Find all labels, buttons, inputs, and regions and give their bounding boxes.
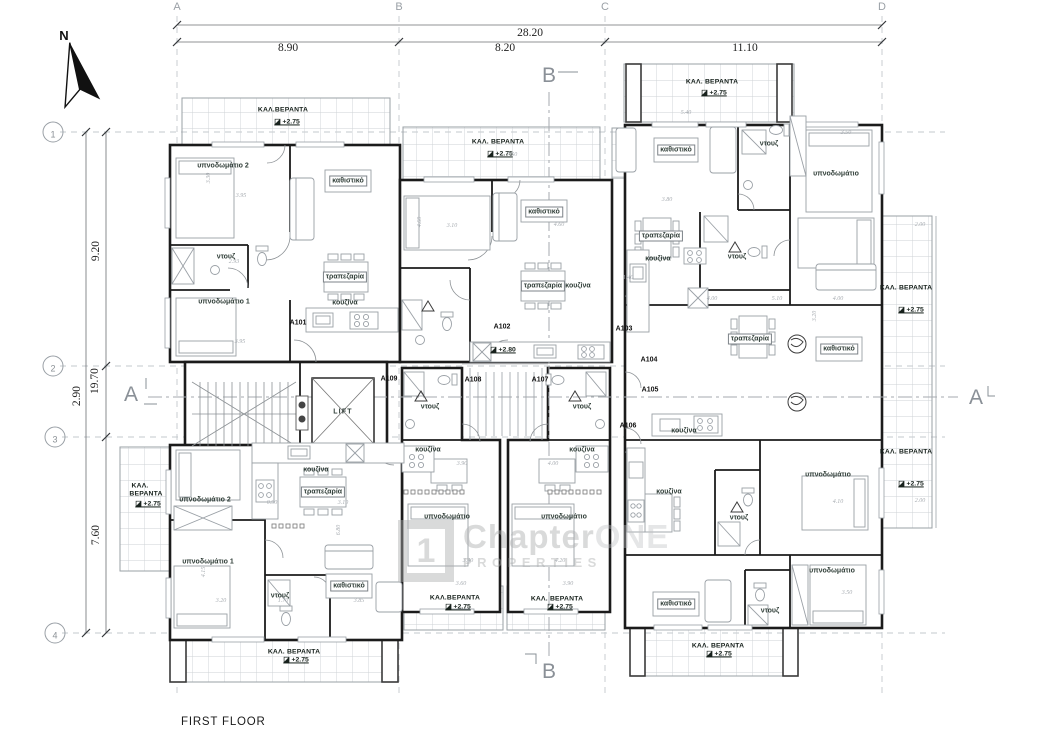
room-label: ντουζ [728, 253, 746, 260]
room-label: κουζίνα [415, 446, 440, 453]
sofa-icon [705, 580, 731, 622]
veranda-label: ΒΕΡΑΝΤΑ [129, 490, 162, 497]
wardrobe-icon [792, 565, 808, 625]
grid-row-label: 4 [52, 631, 57, 640]
minor-dimension-label: 4.60 [554, 222, 565, 228]
veranda-label: ΚΑΛ. ΒΕΡΑΝΤΑ [880, 284, 932, 291]
washbasin-icon [744, 181, 753, 190]
toilet-icon [256, 246, 268, 266]
floor-plan-drawing: 1 ChapterONE PROPERTIES ABCD123428.208.9… [0, 0, 1046, 734]
minor-dimension-label: 3.90 [563, 581, 574, 587]
level-marker: ◪ +2.75 [283, 656, 309, 663]
room-label: υπνοδωμάτιο [805, 471, 851, 478]
minor-dimension-label: 1.70 [278, 598, 289, 604]
minor-dimension-label: 5.10 [772, 296, 783, 302]
minor-dimension-label: 4.00 [833, 296, 844, 302]
minor-dimension-label: 4.00 [548, 461, 559, 467]
room-label: κουζίνα [645, 255, 670, 262]
dimension-label: 7.60 [90, 525, 102, 545]
minor-dimension-label: 3.20 [216, 598, 227, 604]
minor-dimension-label: 4.10 [833, 499, 844, 505]
minor-dimension-label: 3.40 [463, 558, 474, 564]
room-label: τραπεζαρία [521, 281, 565, 292]
kitchen-counter-icon [627, 448, 645, 532]
armchair-icon [376, 582, 402, 612]
plan-linework [0, 0, 1046, 734]
veranda-label: ΚΑΛ. ΒΕΡΑΝΤΑ [692, 642, 744, 649]
minor-dimension-label: 4.15 [201, 567, 207, 578]
minor-dimension-label: 3.10 [338, 500, 349, 506]
room-label: κουζίνα [303, 466, 328, 473]
grid-column-label: A [173, 2, 180, 14]
grid-column-label: D [878, 2, 886, 14]
level-marker: ◪ +2.75 [898, 306, 924, 313]
room-label: υπνοδωμάτιο 1 [198, 298, 250, 305]
level-marker: ◪ +2.75 [135, 500, 161, 507]
dimension-label: 19.70 [89, 368, 101, 394]
grid-row-label: 2 [50, 364, 55, 373]
minor-dimension-label: 3.20 [812, 311, 818, 322]
bed-icon [176, 298, 236, 356]
minor-dimension-label: 3.30 [206, 173, 212, 184]
washbasin-icon [211, 266, 220, 275]
minor-dimension-label: 3.60 [456, 581, 467, 587]
lift-label: LIFT [333, 408, 353, 415]
room-label: τραπεζαρία [323, 272, 367, 283]
level-marker: ◪ +2.75 [274, 118, 300, 125]
apartment-label: A107 [532, 376, 549, 383]
apartment-label: A105 [642, 386, 659, 393]
kitchen-counter-icon [306, 308, 398, 332]
shower-icon [718, 522, 740, 546]
room-label: καθιστικό [329, 176, 367, 187]
sofa-icon [493, 193, 517, 241]
veranda-label: ΚΑΛ.ΒΕΡΑΝΤΑ [430, 594, 480, 601]
room-label: υπνοδωμάτιο 2 [197, 162, 249, 169]
minor-dimension-label: 4.20 [555, 558, 566, 564]
wardrobe-icon [790, 116, 806, 176]
room-label: καθιστικό [657, 599, 695, 610]
dimension-label: 2.90 [71, 386, 83, 406]
sofa-icon [325, 545, 373, 569]
level-marker: ◪ +2.75 [701, 89, 727, 96]
minor-dimension-label: 3.85 [354, 598, 365, 604]
toilet-icon [280, 606, 292, 626]
shower-icon [404, 372, 424, 396]
veranda-label: ΚΑΛ. ΒΕΡΑΝΤΑ [531, 595, 583, 602]
grid-row-label: 1 [50, 130, 55, 139]
room-label: καθιστικό [820, 344, 858, 355]
section-marker-label: A [969, 387, 983, 409]
water-heater [296, 396, 308, 430]
section-marker-label: A [124, 384, 138, 406]
room-label: κουζίνα [656, 488, 681, 495]
minor-dimension-label: 3.50 [841, 130, 852, 136]
shower-icon [402, 300, 422, 330]
minor-dimension-label: 0.90 [267, 500, 278, 506]
sofa-icon [616, 128, 636, 172]
room-label: καθιστικό [525, 207, 563, 218]
wardrobe-icon [174, 506, 232, 530]
room-label: υπνοδωμάτιο [424, 513, 470, 520]
minor-dimension-label: 3.95 [235, 339, 246, 345]
room-label: κουζίνα [332, 299, 357, 306]
sofa-icon [816, 264, 876, 290]
section-marker-label: B [542, 661, 556, 683]
level-marker: ◪ +2.75 [898, 480, 924, 487]
room-label: ντουζ [573, 403, 591, 410]
minor-dimension-label: 3.50 [842, 590, 853, 596]
room-label: υπνοδωμάτιο [813, 170, 859, 177]
bed-icon [176, 450, 240, 500]
dimension-label: 9.20 [90, 241, 102, 261]
dimension-label: 28.20 [517, 27, 543, 39]
minor-dimension-label: 3.95 [236, 193, 247, 199]
shower-icon [586, 372, 606, 396]
minor-dimension-label: 3.90 [457, 461, 468, 467]
minor-dimension-label: 4.60 [417, 217, 423, 228]
dimension-label: 8.90 [278, 42, 298, 54]
minor-dimension-label: 7.50 [507, 152, 518, 158]
minor-dimension-label: 3.10 [447, 223, 458, 229]
room-label: ντουζ [760, 140, 778, 147]
apartment-label: A108 [465, 376, 482, 383]
apartment-label: A106 [620, 422, 637, 429]
minor-dimension-label: 2.00 [915, 222, 926, 228]
room-label: καθιστικό [657, 145, 695, 156]
washbasin-icon [596, 420, 605, 429]
level-marker: ◪ +2.80 [490, 346, 516, 353]
grid-row-label: 3 [52, 435, 57, 444]
level-marker: ◪ +2.75 [445, 603, 471, 610]
grid-row-bubbles [43, 122, 65, 643]
veranda-label: ΚΑΛ. ΒΕΡΑΝΤΑ [880, 448, 932, 455]
minor-dimension-label: 5.40 [681, 110, 692, 116]
grid-column-label: C [601, 2, 609, 14]
room-label: κουζίνα [671, 427, 696, 434]
section-marker-label: B [542, 65, 556, 87]
minor-dimension-label: 3.80 [662, 197, 673, 203]
room-label: ντουζ [421, 403, 439, 410]
room-label: υπνοδωμάτιο [541, 513, 587, 520]
veranda-label: ΚΑΛ. ΒΕΡΑΝΤΑ [268, 648, 320, 655]
room-label: ντουζ [730, 514, 748, 521]
apartment-label: A103 [616, 325, 633, 332]
room-label: τραπεζαρία [728, 334, 772, 345]
minor-dimension-label: 2.93 [229, 259, 240, 265]
apartment-label: A102 [494, 323, 511, 330]
grid-column-label: B [395, 2, 402, 14]
room-label: τραπεζαρία [639, 231, 683, 242]
toilet-icon [770, 124, 790, 136]
shower-icon [172, 248, 194, 284]
room-label: κουζίνα [569, 446, 594, 453]
level-marker: ◪ +2.75 [547, 603, 573, 610]
north-arrow-icon [52, 39, 100, 107]
room-label: υπνοδωμάτιο [809, 567, 855, 574]
veranda-label: ΚΑΛ.ΒΕΡΑΝΤΑ [258, 106, 308, 113]
veranda-label: ΚΑΛ. ΒΕΡΑΝΤΑ [472, 138, 524, 145]
veranda-label: ΚΑΛ. [131, 482, 148, 489]
minor-dimension-label: 6.80 [336, 525, 342, 536]
washbasin-icon [406, 420, 415, 429]
sofa-icon [290, 178, 314, 240]
dimension-label: 11.10 [732, 42, 757, 54]
shower-icon [704, 216, 728, 242]
bed-icon [798, 218, 874, 268]
minor-dimension-label: 4.00 [707, 296, 718, 302]
room-label: ντουζ [761, 607, 779, 614]
apartment-label: A104 [641, 356, 658, 363]
toilet-icon [754, 583, 766, 601]
room-label: κουζίνα [565, 282, 590, 289]
drawing-title: FIRST FLOOR [181, 716, 266, 728]
washbasin-icon [416, 336, 425, 345]
room-label: τραπεζαρία [301, 487, 345, 498]
minor-dimension-label: 2.00 [915, 498, 926, 504]
toilet-icon [742, 488, 754, 506]
north-label: N [59, 29, 68, 43]
level-marker: ◪ +2.75 [706, 650, 732, 657]
apartment-label: A101 [290, 319, 307, 326]
room-label: υπνοδωμάτιο 2 [179, 496, 231, 503]
room-label: υπνοδωμάτιο 1 [182, 558, 234, 565]
apartment-label: A109 [381, 375, 398, 382]
minor-dimension-label: 1.40 [623, 275, 634, 281]
bed-icon [176, 158, 234, 238]
room-label: καθιστικό [330, 581, 368, 592]
sofa-icon [710, 127, 736, 173]
veranda-label: ΚΑΛ. ΒΕΡΑΝΤΑ [686, 78, 738, 85]
dimension-label: 8.20 [495, 42, 515, 54]
